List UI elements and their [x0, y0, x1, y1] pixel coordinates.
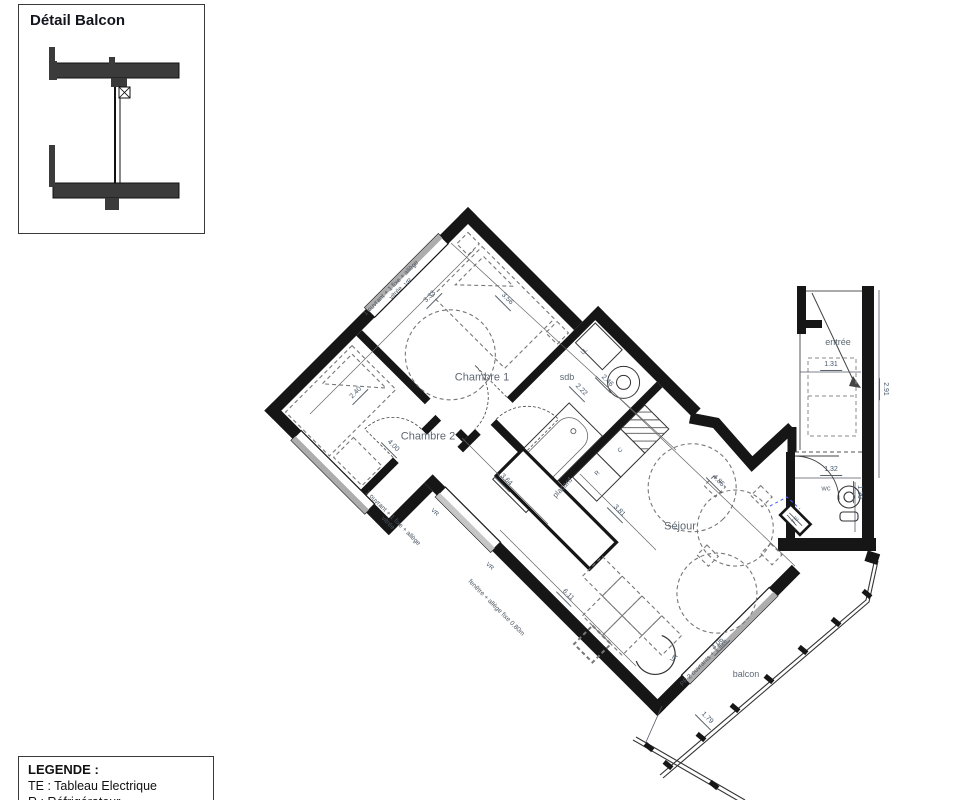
legend-box: LEGENDE : TE : Tableau Electrique R : Ré…: [18, 756, 214, 800]
rotated-apartment-block: [262, 190, 833, 761]
fixtures: [466, 323, 716, 573]
floor-plan-sheet: Chambre 1Chambre 2Séjoursdbentréebalconw…: [0, 0, 977, 800]
legend-title: LEGENDE :: [28, 762, 204, 777]
balcony-railing: [633, 550, 880, 800]
turning-circle-sejour2: [660, 537, 773, 650]
window-chambre2: [291, 436, 369, 514]
detail-balcon-box: Détail Balcon: [18, 4, 205, 234]
window-chambre1: [365, 234, 443, 312]
washbasin: [601, 360, 646, 405]
bed-chambre1: [433, 247, 555, 369]
toilet-icon: [838, 486, 860, 521]
legend-item-te: TE : Tableau Electrique: [28, 779, 204, 793]
window-sejour: [435, 493, 494, 552]
balcony-section-drawing: [23, 33, 203, 228]
legend-item-r: R : Réfrigérateur: [28, 795, 204, 800]
detail-balcon-title: Détail Balcon: [30, 12, 204, 29]
entrance-door: [812, 293, 855, 384]
window-balcon-sliding: [686, 592, 778, 684]
dining-table: [682, 474, 789, 581]
v-wall: [690, 418, 792, 464]
entree-closet: [808, 358, 856, 436]
entree-wc-block: [690, 286, 879, 551]
door-chambre1: [443, 365, 507, 429]
door-chambre2: [365, 401, 422, 458]
turning-circle-chambre1: [387, 291, 514, 418]
